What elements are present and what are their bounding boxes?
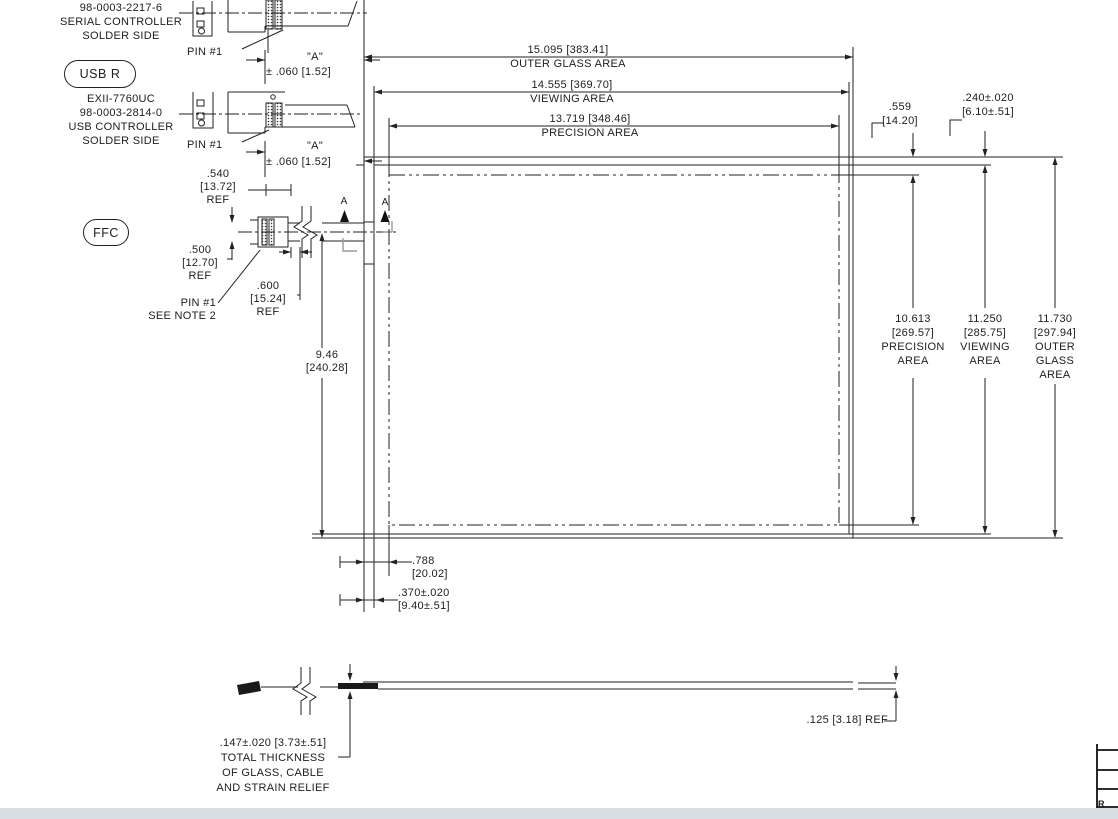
section-cut-marks [343, 221, 392, 251]
pin1-serial-label: PIN #1 [187, 46, 222, 59]
usb-controller-callout: EXII-7760UC 98-0003-2814-0 USB CONTROLLE… [68, 92, 173, 148]
dim-outer-glass-width-value: 15.095 [383.41] [528, 44, 609, 57]
dim-total-thickness: .147±.020 [3.73±.51] TOTAL THICKNESS OF … [216, 736, 329, 796]
pin1-ffc-note: PIN #1 SEE NOTE 2 [96, 297, 216, 323]
dimension-lines [312, 0, 1063, 612]
section-mark-a-1: A [341, 196, 348, 207]
serial-controller-callout: 98-0003-2217-6 SERIAL CONTROLLER SOLDER … [60, 1, 182, 43]
dim-946: 9.46 [240.28] [306, 349, 348, 375]
usb-badge-label: USB R [80, 67, 121, 81]
dim-viewing-height: 11.250 [285.75] VIEWING AREA [960, 312, 1010, 368]
panel-plan-view [364, 157, 853, 538]
usb-badge: USB R [64, 60, 136, 88]
dim-500-ref: .500 [12.70] REF [182, 244, 218, 283]
side-view [237, 664, 896, 757]
pin1-usb-label: PIN #1 [187, 139, 222, 152]
dim-outer-glass-height: 11.730 [297.94] OUTER GLASS AREA [1034, 312, 1076, 382]
dim-precision-height: 10.613 [269.57] PRECISION AREA [881, 312, 944, 368]
dim-precision-width-value: 13.719 [348.46] [550, 113, 631, 126]
datum-a-usb-tol: ± .060 [1.52] [266, 156, 331, 169]
dim-540-ref: .540 [13.72] REF [200, 168, 236, 207]
dim-600-ref: .600 [15.24] REF [250, 280, 286, 319]
drawing-sheet: 98-0003-2217-6 SERIAL CONTROLLER SOLDER … [0, 0, 1118, 819]
dim-viewing-width-label: VIEWING AREA [530, 93, 614, 106]
dim-370-offset: .370±.020 [9.40±.51] [398, 587, 450, 613]
dim-125-ref: .125 [3.18] REF [748, 714, 888, 727]
dim-559-offset: .559 [14.20] [882, 100, 918, 128]
dim-precision-width-label: PRECISION AREA [541, 127, 638, 140]
arrowheads [230, 55, 1058, 700]
datum-a-usb: "A" [307, 140, 323, 153]
dim-788-offset: .788 [20.02] [412, 555, 448, 581]
dim-outer-glass-width-label: OUTER GLASS AREA [510, 58, 625, 71]
ffc-badge-label: FFC [93, 226, 119, 240]
datum-a-serial-tol: ± .060 [1.52] [266, 66, 331, 79]
dim-viewing-width-value: 14.555 [369.70] [532, 79, 613, 92]
ffc-badge: FFC [83, 219, 129, 246]
bottom-scroll-band [0, 808, 1118, 819]
section-arrows [340, 210, 390, 222]
dim-240-offset: .240±.020 [6.10±.51] [962, 91, 1014, 119]
datum-a-serial: "A" [307, 51, 323, 64]
section-mark-a-2: A [382, 197, 389, 208]
